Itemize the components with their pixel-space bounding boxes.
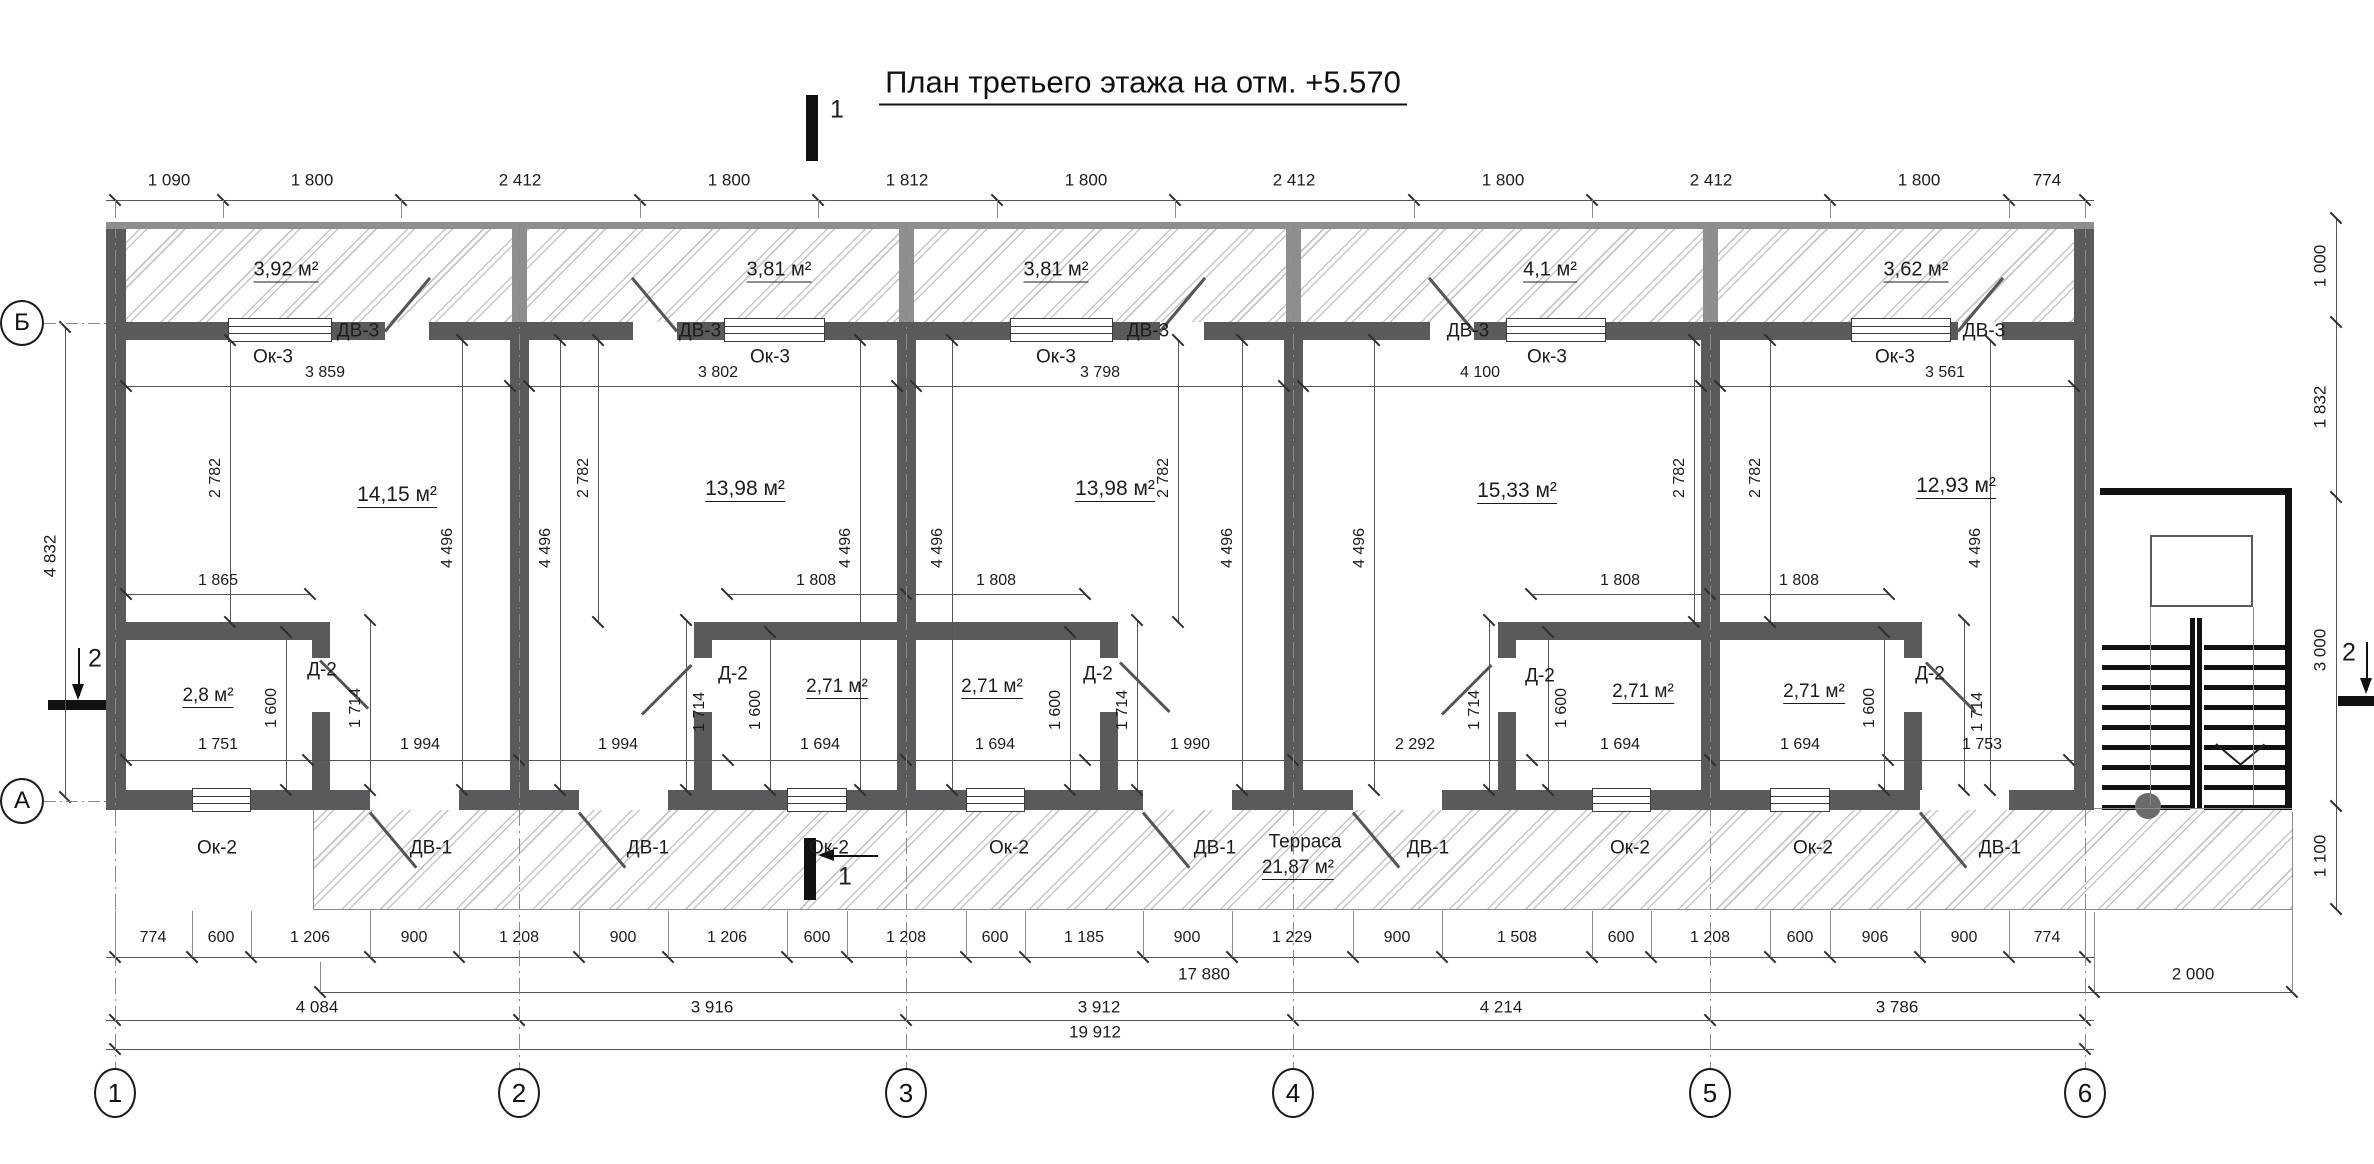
room-height-dims-1: 2 782 <box>208 458 224 498</box>
ext-line <box>370 911 371 957</box>
bottom-dims-row1-9: 1 208 <box>886 930 926 946</box>
bottom-dims-row1-11: 1 185 <box>1064 930 1104 946</box>
axis-bubble-4: 4 <box>1272 1068 1314 1118</box>
window-7 <box>787 788 847 812</box>
window-5 <box>1851 318 1951 342</box>
bottom-dims-axes-5: 3 786 <box>1876 999 1919 1016</box>
bottom-dims-row1-15: 1 508 <box>1497 930 1537 946</box>
bottom-dims-row1-1: 774 <box>140 930 167 946</box>
ext-line <box>997 200 998 218</box>
black-element-56 <box>2102 665 2190 670</box>
door-opening-dims-1: 1 714 <box>348 688 364 728</box>
balcony-windows-5: Ок-3 <box>1875 348 1915 367</box>
section-marks-2: 1 <box>838 865 852 890</box>
bottom-openings-1: Ок-2 <box>197 839 237 858</box>
vline-22 <box>1137 620 1138 790</box>
bottom-dims-row1-5: 1 208 <box>499 930 539 946</box>
stair-railing <box>2150 535 2253 607</box>
closet-doors-4: Д-2 <box>1525 667 1555 686</box>
balcony-areas-2: 3,81 м² <box>747 260 812 283</box>
closet-top-dims-5: 1 808 <box>1779 573 1819 589</box>
black-element-60 <box>2102 745 2190 750</box>
vline-7 <box>1770 340 1771 622</box>
top-dims-6: 1 800 <box>1065 172 1108 189</box>
axis-line-6 <box>2085 222 2086 1070</box>
balcony-windows-3: Ок-3 <box>1036 348 1076 367</box>
balcony-doors-3: ДВ-3 <box>1127 322 1169 341</box>
right-dims-3: 3 000 <box>2312 629 2329 672</box>
bottom-dims-row1-17: 1 208 <box>1690 930 1730 946</box>
black-element-50 <box>2338 696 2374 706</box>
room-areas-4: 15,33 м² <box>1477 480 1557 504</box>
ext-line <box>1175 200 1176 218</box>
wall-segment-40 <box>1100 640 1118 658</box>
window-10 <box>1770 788 1830 812</box>
wall-segment-14 <box>2002 322 2094 340</box>
bottom-dims-row1-3: 1 206 <box>290 930 330 946</box>
room-full-height-dims-4: 4 496 <box>930 528 946 568</box>
black-element-53 <box>2190 618 2195 808</box>
ext-line <box>2085 200 2086 218</box>
balcony-doors-4: ДВ-3 <box>1447 322 1489 341</box>
window-8 <box>966 788 1025 812</box>
door-opening-dims-2: 1 714 <box>692 692 708 732</box>
mid-dims-7: 2 292 <box>1395 737 1435 753</box>
black-element-61 <box>2102 765 2190 770</box>
room-areas-2: 13,98 м² <box>705 478 785 502</box>
mid-dims-10: 1 753 <box>1962 737 2002 753</box>
wall-segment-45 <box>1904 640 1922 658</box>
bottom-dims-row1-12: 900 <box>1174 930 1201 946</box>
balcony-doors-5: ДВ-3 <box>1963 322 2005 341</box>
axis-bubble-a: А <box>0 778 44 824</box>
vline-6 <box>1694 340 1695 622</box>
vline-1 <box>65 327 66 797</box>
balcony-areas-4: 4,1 м² <box>1523 260 1577 283</box>
vline-15 <box>286 632 287 790</box>
ext-line <box>668 911 669 957</box>
window-3 <box>1010 318 1113 342</box>
vline-19 <box>1884 632 1885 790</box>
ext-line <box>2009 200 2010 218</box>
vline-5 <box>1178 340 1179 622</box>
mid-dims-4: 1 694 <box>800 737 840 753</box>
drawing-title: План третьего этажа на отм. +5.570 <box>879 65 1407 106</box>
black-element-51 <box>2100 488 2292 495</box>
window-1 <box>228 318 332 342</box>
wall-segment-4 <box>106 322 228 340</box>
bottom-openings-10: ДВ-1 <box>1979 839 2021 858</box>
hline-13 <box>106 1020 2094 1021</box>
ext-line <box>847 911 848 957</box>
ext-line <box>223 200 224 218</box>
balcony-width-dims-5: 3 561 <box>1925 365 1965 381</box>
top-dims-3: 2 412 <box>499 172 542 189</box>
wall-segment-35 <box>312 640 330 658</box>
axis-line-1 <box>115 222 116 1070</box>
mid-dims-9: 1 694 <box>1780 737 1820 753</box>
wall-segment-36 <box>312 712 330 790</box>
hline-10 <box>126 760 2074 761</box>
right-dims-1: 1 000 <box>2312 245 2329 288</box>
bottom-openings-3: ДВ-1 <box>627 839 669 858</box>
ext-line <box>1830 200 1831 218</box>
section-marks-4: 2 <box>2342 641 2356 666</box>
bottom-dims-row1-8: 600 <box>804 930 831 946</box>
bottom-dims-row1-2: 600 <box>208 930 235 946</box>
balcony-doors-1: ДВ-3 <box>337 322 379 341</box>
room-height-dims-4: 2 782 <box>1672 458 1688 498</box>
balcony-width-dims-4: 4 100 <box>1460 365 1500 381</box>
window-2 <box>724 318 825 342</box>
bottom-dims-row1-7: 1 206 <box>707 930 747 946</box>
room-areas-1: 14,15 м² <box>357 484 437 508</box>
closet-height-dims-5: 1 600 <box>1862 688 1878 728</box>
black-element-71 <box>2204 785 2285 790</box>
top-dims-8: 1 800 <box>1482 172 1525 189</box>
bottom-dims-axes-3: 3 912 <box>1078 999 1121 1016</box>
ext-line <box>1442 911 1443 957</box>
ext-line <box>192 911 193 957</box>
section-marks-3: 2 <box>88 647 102 672</box>
balcony-width-dims-3: 3 798 <box>1080 365 1120 381</box>
black-element-67 <box>2204 705 2285 710</box>
closet-height-dims-2: 1 600 <box>748 690 764 730</box>
vline-11 <box>952 340 953 790</box>
ext-line <box>115 200 116 218</box>
axis-bubble-3: 3 <box>885 1068 927 1118</box>
room-full-height-dims-2: 4 496 <box>538 528 554 568</box>
wall-segment-16 <box>251 790 370 810</box>
ext-line <box>251 911 252 957</box>
bottom-dims-row1-19: 906 <box>1862 930 1889 946</box>
ext-line <box>640 200 641 218</box>
bottom-dims-axes-4: 4 214 <box>1480 999 1523 1016</box>
black-element-70 <box>2204 765 2285 770</box>
section-2-right-arrow <box>2360 678 2372 694</box>
balcony-areas-3: 3,81 м² <box>1024 260 1089 283</box>
vline-20 <box>370 620 371 790</box>
hline-11 <box>106 957 2094 958</box>
balcony-windows-1: Ок-3 <box>253 348 293 367</box>
black-element-57 <box>2102 685 2190 690</box>
ext-line <box>1920 911 1921 957</box>
ext-line <box>1353 911 1354 957</box>
ext-line <box>1592 200 1593 218</box>
bottom-openings-9: Ок-2 <box>1793 839 1833 858</box>
window-4 <box>1506 318 1606 342</box>
balcony-areas-5: 3,62 м² <box>1884 260 1949 283</box>
closet-height-dims-3: 1 600 <box>1048 690 1064 730</box>
balcony-width-dims-1: 3 859 <box>305 365 345 381</box>
vline-24 <box>1964 620 1965 790</box>
window-6 <box>192 788 251 812</box>
vline-25 <box>313 810 314 909</box>
bottom-dims-row2-1: 17 880 <box>1178 966 1230 983</box>
closet-doors-5: Д-2 <box>1915 665 1945 684</box>
room-height-dims-3: 2 782 <box>1156 458 1172 498</box>
left-dim-1: 4 832 <box>42 535 59 578</box>
black-element-64 <box>2204 645 2285 650</box>
black-element-52 <box>2285 488 2292 810</box>
room-full-height-dims-7: 4 496 <box>1968 528 1984 568</box>
mid-dims-1: 1 751 <box>198 737 238 753</box>
bottom-dims-row1-21: 774 <box>2034 930 2061 946</box>
hline-12 <box>320 992 2292 993</box>
wall-segment-3 <box>106 222 2094 229</box>
door-opening-dims-4: 1 714 <box>1467 690 1483 730</box>
vline-29 <box>2150 607 2151 805</box>
ext-line <box>787 911 788 957</box>
top-dims-1: 1 090 <box>148 172 191 189</box>
ext-line <box>459 911 460 957</box>
closet-top-dims-4: 1 808 <box>1600 573 1640 589</box>
wall-segment-2 <box>2074 222 2094 810</box>
vline-30 <box>2253 607 2254 805</box>
top-dims-4: 1 800 <box>708 172 751 189</box>
black-element-58 <box>2102 705 2190 710</box>
wall-segment-18 <box>668 790 787 810</box>
hline-6 <box>1720 386 2074 387</box>
vline-12 <box>1242 340 1243 790</box>
right-dims-2: 1 832 <box>2312 386 2329 429</box>
mid-dims-2: 1 994 <box>400 737 440 753</box>
vline-13 <box>1374 340 1375 790</box>
closet-areas-1: 2,8 м² <box>182 686 233 708</box>
ext-line <box>1232 911 1233 957</box>
wall-segment-22 <box>1442 790 1592 810</box>
wall-segment-44 <box>1498 712 1516 790</box>
bottom-dims-axes-2: 3 916 <box>691 999 734 1016</box>
vline-8 <box>462 340 463 790</box>
top-dims-2: 1 800 <box>291 172 334 189</box>
hline-2 <box>126 386 510 387</box>
closet-doors-1: Д-2 <box>307 661 337 680</box>
closet-areas-2: 2,71 м² <box>806 677 868 699</box>
bottom-dims-row1-6: 900 <box>610 930 637 946</box>
wall-segment-34 <box>126 622 330 640</box>
closet-areas-4: 2,71 м² <box>1612 682 1674 704</box>
bottom-openings-6: ДВ-1 <box>1194 839 1236 858</box>
wall-segment-46 <box>1904 712 1922 790</box>
closet-top-dims-3: 1 808 <box>976 573 1016 589</box>
axis-line-h-1 <box>44 323 106 324</box>
ext-line <box>818 200 819 218</box>
vline-18 <box>1548 632 1549 790</box>
black-element-66 <box>2204 685 2285 690</box>
ext-line <box>1770 911 1771 957</box>
bottom-openings-4: Ок-2 <box>809 839 849 858</box>
top-dims-9: 2 412 <box>1690 172 1733 189</box>
black-element-59 <box>2102 725 2190 730</box>
room-full-height-dims-5: 4 496 <box>1220 528 1236 568</box>
mid-dims-3: 1 994 <box>598 737 638 753</box>
axis-bubble-2: 2 <box>498 1068 540 1118</box>
bottom-dims-row1-14: 900 <box>1384 930 1411 946</box>
axis-line-h-2 <box>44 801 106 802</box>
terrace-1: Терраса <box>1269 833 1342 852</box>
vline-21 <box>686 620 687 790</box>
vline-4 <box>598 340 599 622</box>
room-full-height-dims-6: 4 496 <box>1352 528 1368 568</box>
hline-15 <box>313 909 2292 910</box>
balcony-windows-2: Ок-3 <box>750 348 790 367</box>
closet-areas-5: 2,71 м² <box>1783 682 1845 704</box>
mid-dims-5: 1 694 <box>975 737 1015 753</box>
balcony-width-dims-2: 3 802 <box>698 365 738 381</box>
column-marker <box>2135 793 2161 819</box>
black-element-55 <box>2102 645 2190 650</box>
top-dims-5: 1 812 <box>886 172 929 189</box>
window-9 <box>1592 788 1651 812</box>
right-dims-4: 1 100 <box>2312 835 2329 878</box>
axis-bubble-1: 1 <box>94 1068 136 1118</box>
terrace-2: 21,87 м² <box>1262 858 1334 880</box>
closet-height-dims-4: 1 600 <box>1554 688 1570 728</box>
hatch-area-1 <box>126 229 2074 322</box>
bottom-dims-total-1: 19 912 <box>1069 1024 1121 1041</box>
closet-areas-3: 2,71 м² <box>961 677 1023 699</box>
room-areas-5: 12,93 м² <box>1916 475 1996 499</box>
black-element-65 <box>2204 665 2285 670</box>
closet-top-dims-2: 1 808 <box>796 573 836 589</box>
axis-bubble-5: 5 <box>1689 1068 1731 1118</box>
vline-27 <box>2094 912 2095 992</box>
black-element-62 <box>2102 785 2190 790</box>
bottom-openings-8: Ок-2 <box>1610 839 1650 858</box>
ext-line <box>1592 911 1593 957</box>
closet-doors-3: Д-2 <box>1083 665 1113 684</box>
door-opening-dims-3: 1 714 <box>1115 690 1131 730</box>
top-dims-7: 2 412 <box>1273 172 1316 189</box>
room-full-height-dims-3: 4 496 <box>838 528 854 568</box>
floor-plan-canvas: План третьего этажа на отм. +5.570 12345… <box>0 0 2374 1164</box>
vline-23 <box>1489 620 1490 790</box>
bottom-openings-2: ДВ-1 <box>410 839 452 858</box>
vline-28 <box>2292 812 2293 992</box>
hline-14 <box>106 1049 2094 1050</box>
wall-segment-24 <box>1830 790 1920 810</box>
ext-line <box>579 911 580 957</box>
wall-segment-43 <box>1498 640 1516 658</box>
vline-14 <box>1990 340 1991 790</box>
wall-segment-20 <box>1025 790 1143 810</box>
vline-17 <box>1070 632 1071 790</box>
vline-10 <box>860 340 861 790</box>
vline-9 <box>560 340 561 790</box>
wall-segment-8 <box>825 322 1010 340</box>
vline-26 <box>320 962 321 992</box>
bottom-openings-7: ДВ-1 <box>1407 839 1449 858</box>
door-opening-dims-5: 1 714 <box>1970 692 1986 732</box>
closet-doors-2: Д-2 <box>718 665 748 684</box>
closet-height-dims-1: 1 600 <box>264 688 280 728</box>
axis-bubble-b: Б <box>0 300 44 346</box>
balcony-areas-1: 3,92 м² <box>254 260 319 283</box>
balcony-doors-2: ДВ-3 <box>679 322 721 341</box>
bottom-dims-row1-18: 600 <box>1787 930 1814 946</box>
top-dims-10: 1 800 <box>1898 172 1941 189</box>
ext-line <box>1025 911 1026 957</box>
bottom-openings-5: Ок-2 <box>989 839 1029 858</box>
black-element-47 <box>806 95 818 161</box>
room-height-dims-2: 2 782 <box>576 458 592 498</box>
hline-5 <box>1303 386 1701 387</box>
room-full-height-dims-1: 4 496 <box>440 528 456 568</box>
wall-segment-12 <box>1606 322 1851 340</box>
balcony-windows-4: Ок-3 <box>1527 348 1567 367</box>
axis-bubble-6: 6 <box>2064 1068 2106 1118</box>
vline-16 <box>770 632 771 790</box>
ext-line <box>966 911 967 957</box>
bottom-dims-row1-20: 900 <box>1951 930 1978 946</box>
bottom-dims-row2-2: 2 000 <box>2172 966 2215 983</box>
closet-top-dims-1: 1 865 <box>198 573 238 589</box>
ext-line <box>1143 911 1144 957</box>
door-leaf-12 <box>641 664 693 716</box>
section-marks-1: 1 <box>830 98 844 123</box>
mid-dims-8: 1 694 <box>1600 737 1640 753</box>
bottom-dims-row1-16: 600 <box>1608 930 1635 946</box>
wall-segment-38 <box>694 640 712 658</box>
black-element-49 <box>48 700 106 710</box>
hline-4 <box>916 386 1284 387</box>
ext-line <box>1414 200 1415 218</box>
ext-line <box>2009 911 2010 957</box>
hline-3 <box>529 386 897 387</box>
bottom-dims-row1-4: 900 <box>401 930 428 946</box>
black-element-54 <box>2197 618 2202 808</box>
top-dims-11: 774 <box>2033 172 2061 189</box>
hline-7 <box>126 594 310 595</box>
wall-segment-1 <box>106 222 126 810</box>
bottom-dims-axes-1: 4 084 <box>296 999 339 1016</box>
room-areas-3: 13,98 м² <box>1075 478 1155 502</box>
bottom-dims-row1-13: 1 229 <box>1272 930 1312 946</box>
ext-line <box>1651 911 1652 957</box>
wall-segment-15 <box>106 790 192 810</box>
ext-line <box>401 200 402 218</box>
ext-line <box>1830 911 1831 957</box>
section-2-left-arrow <box>72 684 84 700</box>
room-height-dims-5: 2 782 <box>1748 458 1764 498</box>
black-element-68 <box>2204 725 2285 730</box>
bottom-dims-row1-10: 600 <box>982 930 1009 946</box>
mid-dims-6: 1 990 <box>1170 737 1210 753</box>
hline-16 <box>2094 808 2292 809</box>
wall-segment-25 <box>2009 790 2094 810</box>
